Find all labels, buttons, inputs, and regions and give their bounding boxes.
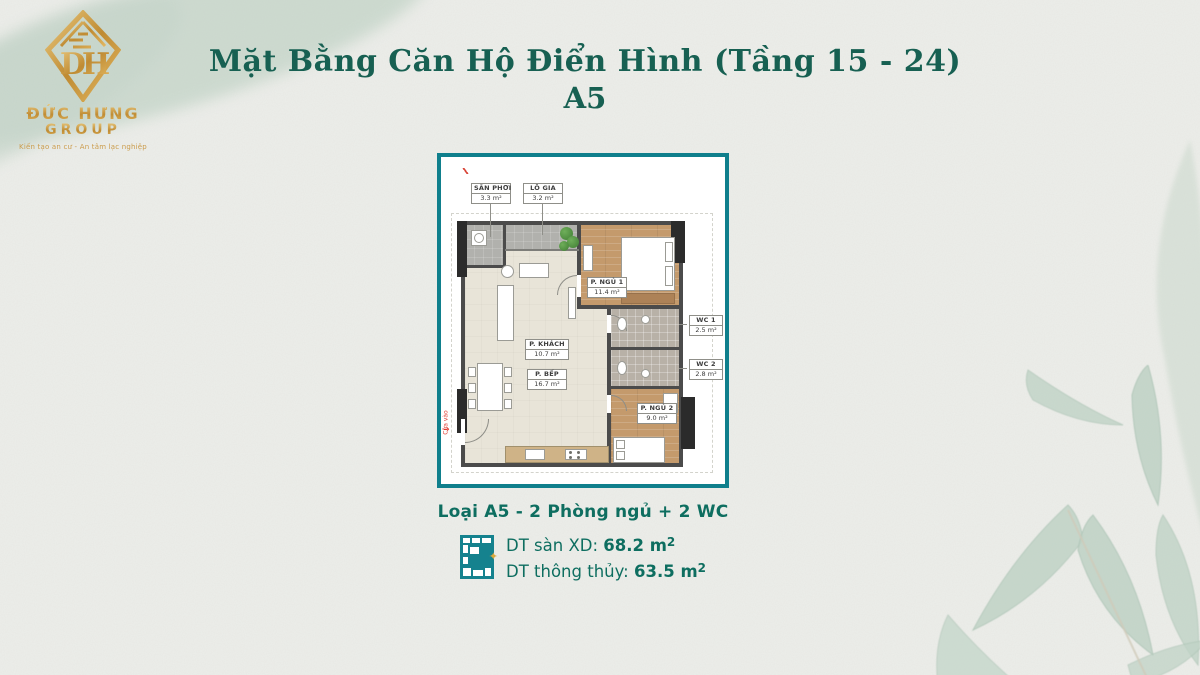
floor-plan-card: SÂN PHƠI 3.3 m² LÔ GIA 3.2 m² P. NGỦ 1 1… [437, 153, 729, 488]
page-title-line1: Mặt Bằng Căn Hộ Điển Hình (Tầng 15 - 24) [185, 44, 985, 79]
dining-chair [504, 383, 512, 393]
pillow [665, 242, 673, 262]
pillow [665, 266, 673, 286]
page-title: Mặt Bằng Căn Hộ Điển Hình (Tầng 15 - 24)… [185, 44, 985, 115]
room-area: 11.4 m² [588, 288, 626, 297]
room-label-wc1: WC 1 2.5 m² [689, 315, 723, 336]
gross-area-line: DT sàn XD: 68.2 m2 [506, 531, 706, 557]
wall-bedroom1-wc [577, 305, 683, 309]
room-label-kitchen: P. BẾP 16.7 m² [527, 369, 567, 390]
net-area-value: 63.5 m [634, 562, 698, 581]
kitchen-counter [505, 446, 609, 463]
room-area: 10.7 m² [526, 350, 568, 359]
room-area: 2.5 m² [690, 326, 722, 335]
gross-area-value: 68.2 m [603, 536, 667, 555]
wall-top [461, 221, 683, 225]
armchair-row [497, 285, 514, 341]
bedroom1-rug [621, 293, 675, 304]
column-top-left [457, 221, 467, 277]
leader-line [490, 203, 491, 237]
wall-dryingyard-bottom [461, 265, 506, 268]
company-tagline: Kiến tạo an cư - An tâm lạc nghiệp [8, 143, 158, 151]
watercolor-leaf-decoration-bottom-right [918, 365, 1200, 675]
leader-line [679, 324, 687, 325]
tv-cabinet [568, 287, 576, 319]
room-label-bedroom2: P. NGỦ 2 9.0 m² [637, 403, 677, 424]
net-area-label: DT thông thủy: [506, 562, 634, 581]
dining-chair [468, 383, 476, 393]
column-right-bedroom2 [681, 397, 695, 449]
room-name: P. NGỦ 1 [588, 278, 626, 288]
loggia-sliding-door [505, 249, 579, 251]
revision-mark [461, 168, 470, 174]
area-spec-row: ✦ DT sàn XD: 68.2 m2 DT thông thủy: 63.5… [437, 531, 729, 583]
dh-diamond-logo-icon: DH [45, 10, 121, 102]
leader-line [542, 203, 543, 235]
toilet-icon [617, 317, 627, 331]
room-label-bedroom1: P. NGỦ 1 11.4 m² [587, 277, 627, 298]
wall-bottom [461, 463, 683, 467]
washbasin-icon [641, 369, 650, 378]
gross-area-label: DT sàn XD: [506, 536, 603, 555]
page-title-line2: A5 [185, 81, 985, 115]
company-logo: DH ĐỨC HƯNG GROUP Kiến tạo an cư - An tâ… [8, 10, 158, 151]
wall-dryingyard-right [503, 221, 506, 267]
sofa [519, 263, 549, 278]
room-area: 3.2 m² [524, 194, 562, 203]
washbasin-icon [641, 315, 650, 324]
kitchen-sink [525, 449, 545, 460]
plant-icon [559, 241, 569, 251]
wall-wc2-bedroom2 [611, 386, 683, 389]
company-name: ĐỨC HƯNG [8, 104, 158, 123]
room-label-drying-yard: SÂN PHƠI 3.3 m² [471, 183, 511, 204]
pillow [616, 440, 625, 449]
square-superscript: 2 [667, 535, 675, 549]
room-name: P. KHÁCH [526, 340, 568, 350]
room-area: 2.8 m² [690, 370, 722, 379]
washing-machine-drum-icon [474, 233, 484, 243]
dining-chair [504, 367, 512, 377]
apartment-type-label: Loại A5 - 2 Phòng ngủ + 2 WC [437, 502, 729, 522]
company-group-word: GROUP [8, 122, 158, 138]
pillow [616, 451, 625, 460]
room-area: 9.0 m² [638, 414, 676, 423]
room-name: WC 1 [690, 316, 722, 326]
room-label-living: P. KHÁCH 10.7 m² [525, 339, 569, 360]
dining-chair [504, 399, 512, 409]
logo-monogram: DH [60, 47, 109, 82]
area-spec-lines: DT sàn XD: 68.2 m2 DT thông thủy: 63.5 m… [506, 531, 706, 583]
room-name: SÂN PHƠI [472, 184, 510, 194]
toilet-icon [617, 361, 627, 375]
apartment-summary: Loại A5 - 2 Phòng ngủ + 2 WC ✦ DT sàn XD… [437, 502, 729, 583]
floor-plan-drawing: SÂN PHƠI 3.3 m² LÔ GIA 3.2 m² P. NGỦ 1 1… [441, 157, 725, 484]
leader-line [679, 368, 687, 369]
square-superscript: 2 [698, 561, 706, 575]
room-area: 16.7 m² [528, 380, 566, 389]
room-name: LÔ GIA [524, 184, 562, 194]
room-name: P. NGỦ 2 [638, 404, 676, 414]
room-label-wc2: WC 2 2.8 m² [689, 359, 723, 380]
sparkle-icon: ✦ [489, 551, 498, 562]
room-area: 3.3 m² [472, 194, 510, 203]
mini-floorplan-icon: ✦ [460, 535, 494, 579]
side-table [501, 265, 514, 278]
dining-chair [468, 399, 476, 409]
burner-icon [569, 456, 572, 459]
dining-table [477, 363, 503, 411]
entry-arrow-icon: → [442, 426, 450, 435]
wall-wc1-wc2 [611, 347, 683, 350]
burner-icon [577, 451, 580, 454]
net-area-line: DT thông thủy: 63.5 m2 [506, 557, 706, 583]
room-label-loggia: LÔ GIA 3.2 m² [523, 183, 563, 204]
dining-chair [468, 367, 476, 377]
bedroom1-door-opening [577, 275, 581, 297]
wardrobe-bedroom1 [583, 245, 593, 271]
burner-icon [569, 451, 572, 454]
room-name: P. BẾP [528, 370, 566, 380]
room-name: WC 2 [690, 360, 722, 370]
burner-icon [577, 456, 580, 459]
